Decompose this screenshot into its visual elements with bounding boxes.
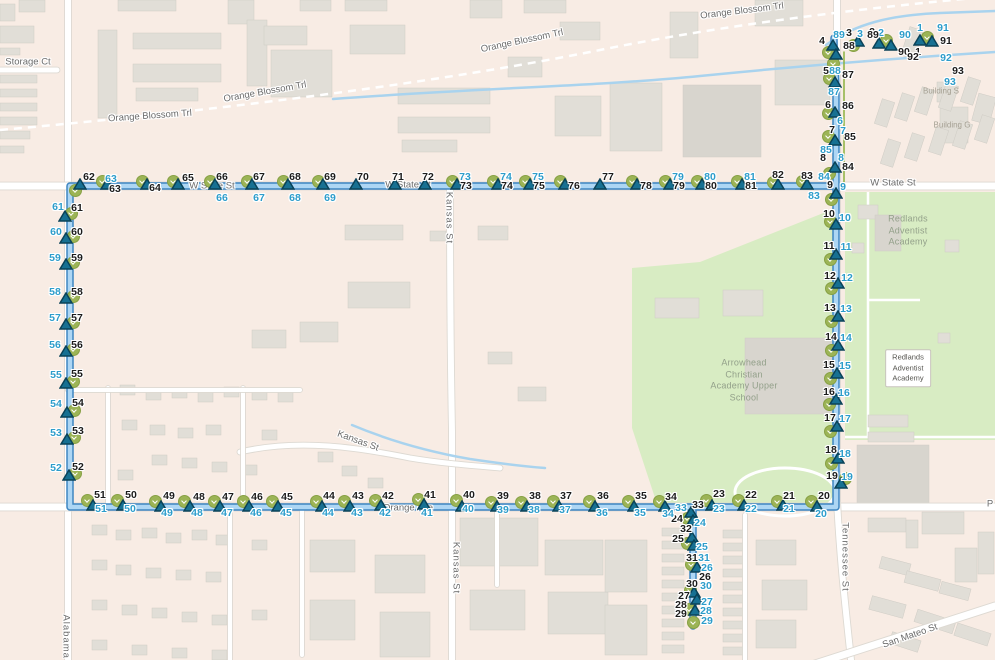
stop-marker[interactable]: [315, 500, 329, 512]
stop-marker[interactable]: [455, 500, 469, 512]
stop-marker[interactable]: [690, 593, 704, 605]
stop-marker[interactable]: [831, 277, 845, 289]
stop-marker[interactable]: [828, 134, 842, 146]
stop-marker[interactable]: [490, 500, 504, 512]
stop-marker[interactable]: [810, 500, 824, 512]
stop-marker[interactable]: [828, 76, 842, 88]
stop-direction-icon[interactable]: [687, 616, 700, 629]
stop-marker[interactable]: [830, 367, 844, 379]
stop-marker[interactable]: [828, 161, 842, 173]
stop-marker[interactable]: [829, 48, 843, 60]
stop-marker[interactable]: [73, 178, 87, 190]
stop-marker[interactable]: [829, 218, 843, 230]
stop-marker[interactable]: [208, 178, 222, 190]
stop-marker[interactable]: [831, 452, 845, 464]
stop-marker[interactable]: [349, 178, 363, 190]
stop-marker[interactable]: [552, 500, 566, 512]
stop-marker[interactable]: [86, 499, 100, 511]
stop-marker[interactable]: [62, 469, 76, 481]
stop-marker[interactable]: [593, 178, 607, 190]
stop-marker[interactable]: [695, 178, 709, 190]
stop-marker[interactable]: [831, 310, 845, 322]
stop-marker[interactable]: [834, 477, 848, 489]
stop-marker[interactable]: [60, 406, 74, 418]
stop-marker[interactable]: [831, 339, 845, 351]
stop-marker[interactable]: [771, 178, 785, 190]
stop-marker[interactable]: [686, 514, 700, 526]
stop-marker[interactable]: [242, 500, 256, 512]
stop-marker[interactable]: [491, 178, 505, 190]
stop-marker[interactable]: [523, 178, 537, 190]
stop-marker[interactable]: [630, 178, 644, 190]
stop-marker[interactable]: [388, 178, 402, 190]
stop-marker[interactable]: [690, 561, 704, 573]
stop-marker[interactable]: [418, 178, 432, 190]
basemap: [0, 0, 995, 660]
stop-marker[interactable]: [59, 232, 73, 244]
stop-marker[interactable]: [171, 178, 185, 190]
stop-marker[interactable]: [829, 187, 843, 199]
stop-marker[interactable]: [59, 258, 73, 270]
stop-marker[interactable]: [776, 499, 790, 511]
stop-marker[interactable]: [737, 499, 751, 511]
stop-marker[interactable]: [925, 35, 939, 47]
stop-marker[interactable]: [687, 539, 701, 551]
stop-marker[interactable]: [417, 498, 431, 510]
stop-marker[interactable]: [588, 500, 602, 512]
stop-marker[interactable]: [520, 500, 534, 512]
stop-marker[interactable]: [829, 248, 843, 260]
stop-marker[interactable]: [735, 178, 749, 190]
map-canvas[interactable]: Storage CtOrange Blossom TrlOrange Bloss…: [0, 0, 995, 660]
stop-marker[interactable]: [59, 318, 73, 330]
stop-marker[interactable]: [851, 35, 865, 47]
stop-marker[interactable]: [558, 178, 572, 190]
stop-marker[interactable]: [884, 39, 898, 51]
stop-marker[interactable]: [658, 500, 672, 512]
stop-marker[interactable]: [271, 500, 285, 512]
stop-marker[interactable]: [688, 604, 702, 616]
stop-marker[interactable]: [343, 500, 357, 512]
stop-marker[interactable]: [100, 178, 114, 190]
stop-marker[interactable]: [705, 499, 719, 511]
stop-marker[interactable]: [154, 500, 168, 512]
stop-marker[interactable]: [828, 106, 842, 118]
stop-marker[interactable]: [183, 500, 197, 512]
stop-marker[interactable]: [663, 178, 677, 190]
stop-marker[interactable]: [116, 499, 130, 511]
stop-marker[interactable]: [59, 345, 73, 357]
stop-marker[interactable]: [245, 178, 259, 190]
stop-marker[interactable]: [830, 420, 844, 432]
stop-marker[interactable]: [281, 178, 295, 190]
stop-marker[interactable]: [59, 292, 73, 304]
stop-marker[interactable]: [59, 377, 73, 389]
stop-marker[interactable]: [58, 210, 72, 222]
stop-marker[interactable]: [316, 178, 330, 190]
stop-marker[interactable]: [140, 178, 154, 190]
stop-marker[interactable]: [800, 178, 814, 190]
stop-marker[interactable]: [627, 500, 641, 512]
stop-marker[interactable]: [829, 393, 843, 405]
stop-marker[interactable]: [213, 500, 227, 512]
stop-marker[interactable]: [374, 499, 388, 511]
stop-marker[interactable]: [450, 178, 464, 190]
stop-marker[interactable]: [60, 433, 74, 445]
